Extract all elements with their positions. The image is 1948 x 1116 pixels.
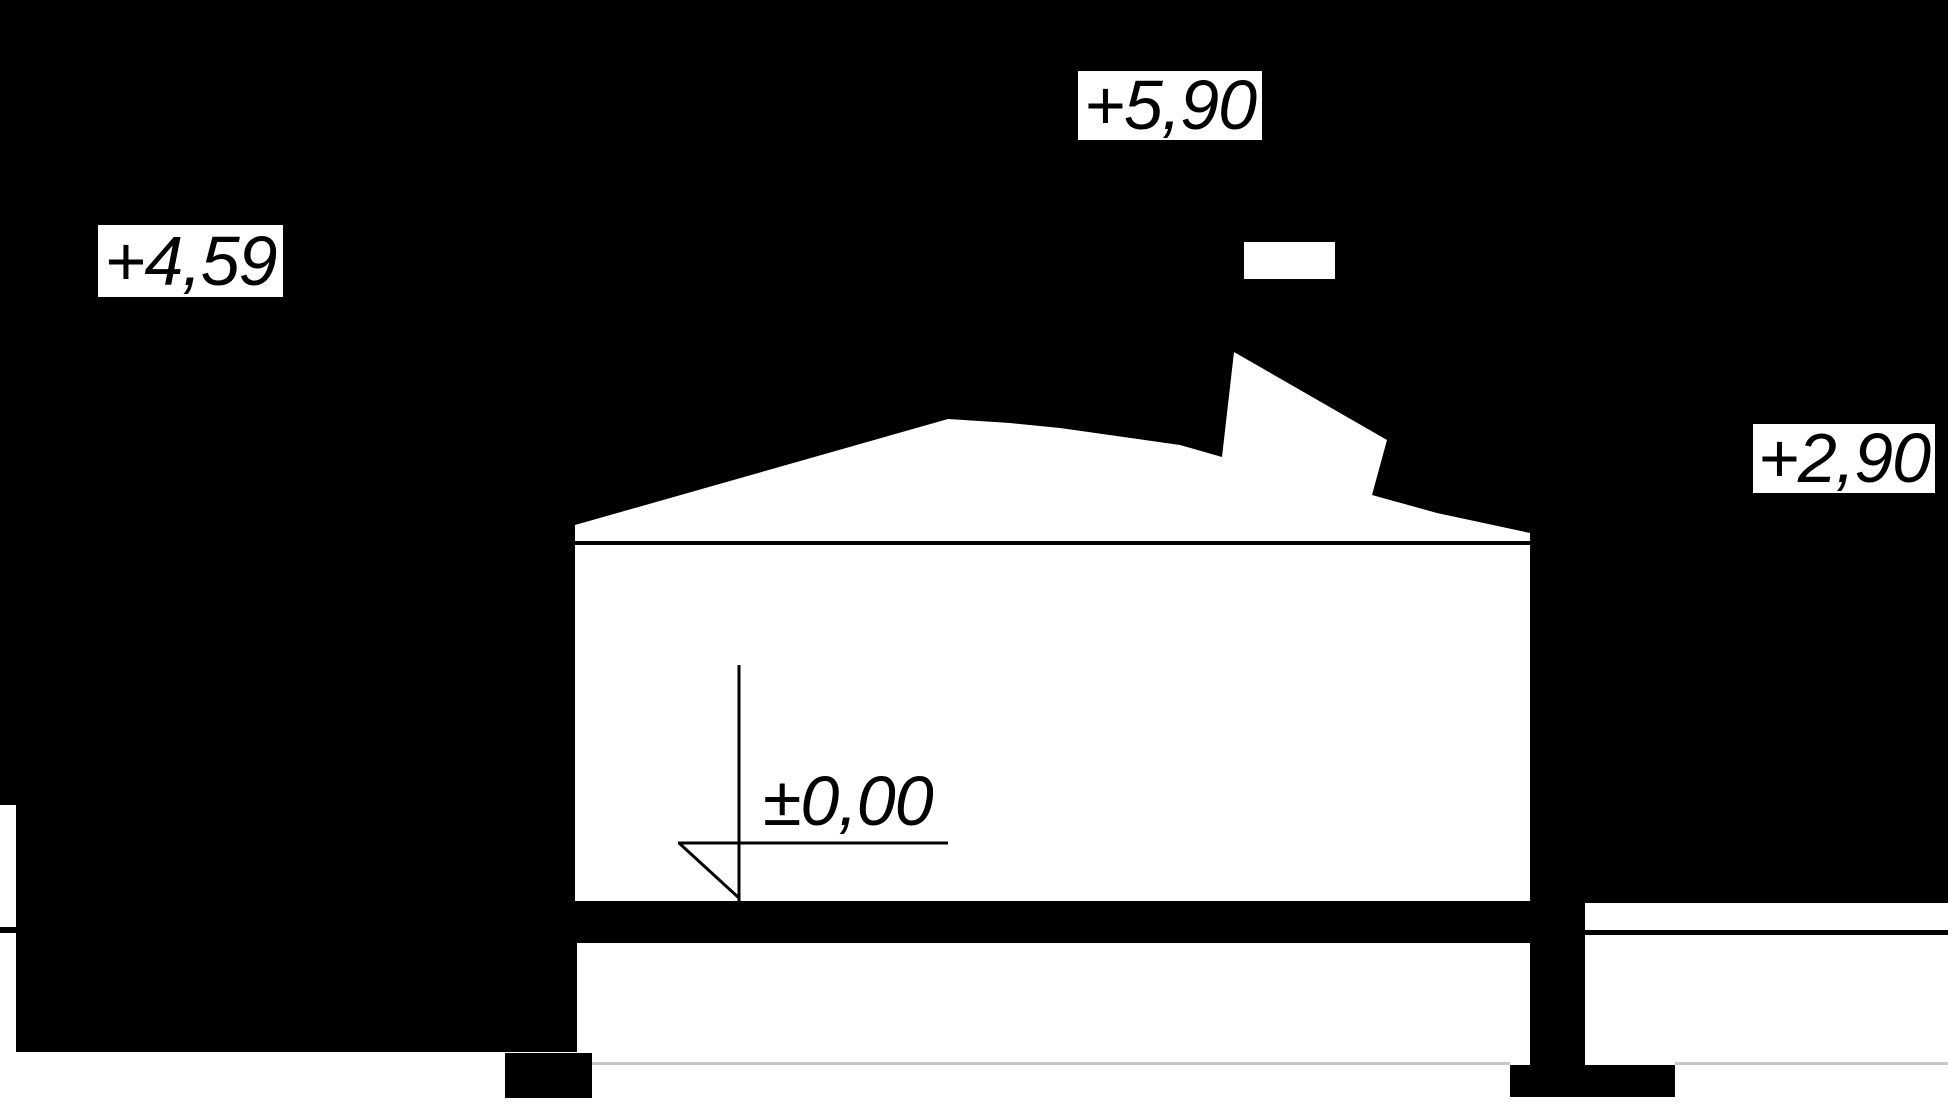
level-label-left: +4,59 — [98, 225, 283, 297]
footing-right — [1510, 1065, 1675, 1097]
level-label-ridge: +5,90 — [1078, 71, 1262, 140]
ground-line-left-edge — [0, 927, 16, 933]
excavation-line-center — [592, 1062, 1510, 1065]
level-label-ground-zero: ±0,00 — [763, 768, 953, 835]
section-drawing — [0, 0, 1948, 1116]
chimney-cap — [1244, 242, 1335, 279]
eave-line — [575, 541, 1530, 545]
subgrade-patch-below-pier — [1510, 1097, 1590, 1116]
section-drawing-canvas: +5,90 +4,59 +2,90 ±0,00 — [0, 0, 1948, 1116]
foundation-band-center — [577, 943, 1530, 1116]
footing-left — [505, 1053, 592, 1098]
level-label-right: +2,90 — [1753, 424, 1935, 493]
ground-strip-right — [1585, 903, 1948, 930]
excavation-line-right — [1675, 1062, 1948, 1065]
subgrade-band-left — [0, 1052, 592, 1116]
building-body-and-roof — [575, 352, 1530, 901]
